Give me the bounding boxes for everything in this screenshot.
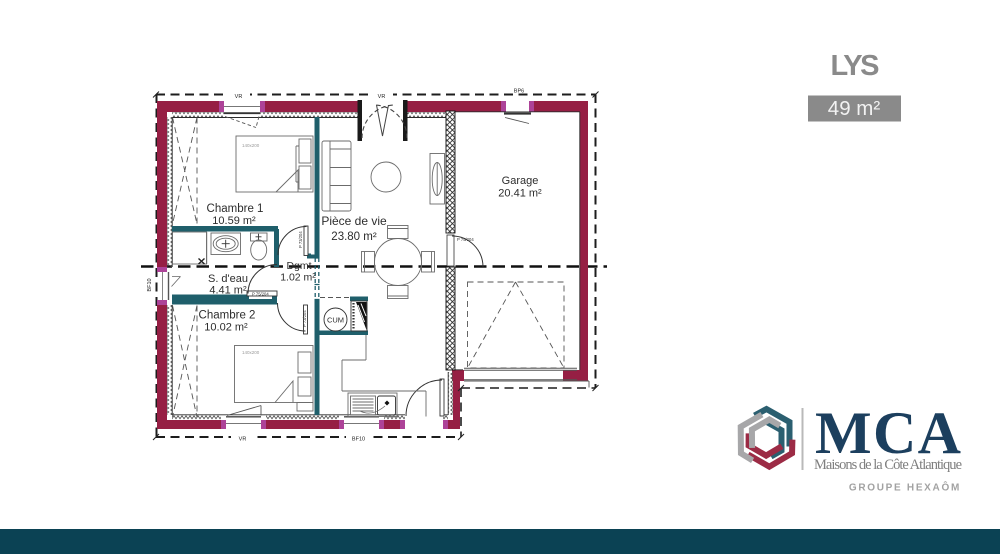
svg-text:BF10: BF10 [147,278,153,291]
svg-text:23.80 m²: 23.80 m² [331,231,377,243]
svg-text:S. d'eau: S. d'eau [208,273,248,285]
svg-text:140x200: 140x200 [242,350,260,355]
svg-text:Garage: Garage [502,175,539,187]
svg-text:VR: VR [235,94,243,100]
svg-text:P 73/204: P 73/204 [298,231,303,248]
svg-text:49 m²: 49 m² [828,97,881,120]
svg-text:10.59 m²: 10.59 m² [212,215,256,227]
svg-text:Pièce de vie: Pièce de vie [321,214,387,228]
svg-text:P 75/204: P 75/204 [252,291,269,296]
svg-text:1.02 m²: 1.02 m² [280,272,316,284]
svg-text:Chambre 2: Chambre 2 [199,310,256,322]
svg-text:CUM: CUM [327,316,344,325]
svg-text:140x200: 140x200 [242,143,260,148]
svg-text:P 75/204: P 75/204 [457,237,474,242]
svg-text:GROUPE HEXAÔM: GROUPE HEXAÔM [849,481,961,494]
svg-text:20.41 m²: 20.41 m² [498,188,542,200]
svg-text:Dgmt: Dgmt [286,260,311,272]
svg-text:VR: VR [378,94,386,100]
svg-text:Chambre 1: Chambre 1 [207,203,264,215]
svg-text:BF10: BF10 [352,437,365,443]
svg-text:10.02 m²: 10.02 m² [204,322,248,334]
svg-text:LYS: LYS [831,50,880,82]
svg-text:VR: VR [239,437,247,443]
svg-text:Maisons de la Côte Atlantique: Maisons de la Côte Atlantique [814,457,962,473]
svg-text:P 73/204: P 73/204 [302,310,307,327]
svg-text:4.41 m²: 4.41 m² [209,285,247,297]
svg-text:BP6: BP6 [514,89,524,95]
